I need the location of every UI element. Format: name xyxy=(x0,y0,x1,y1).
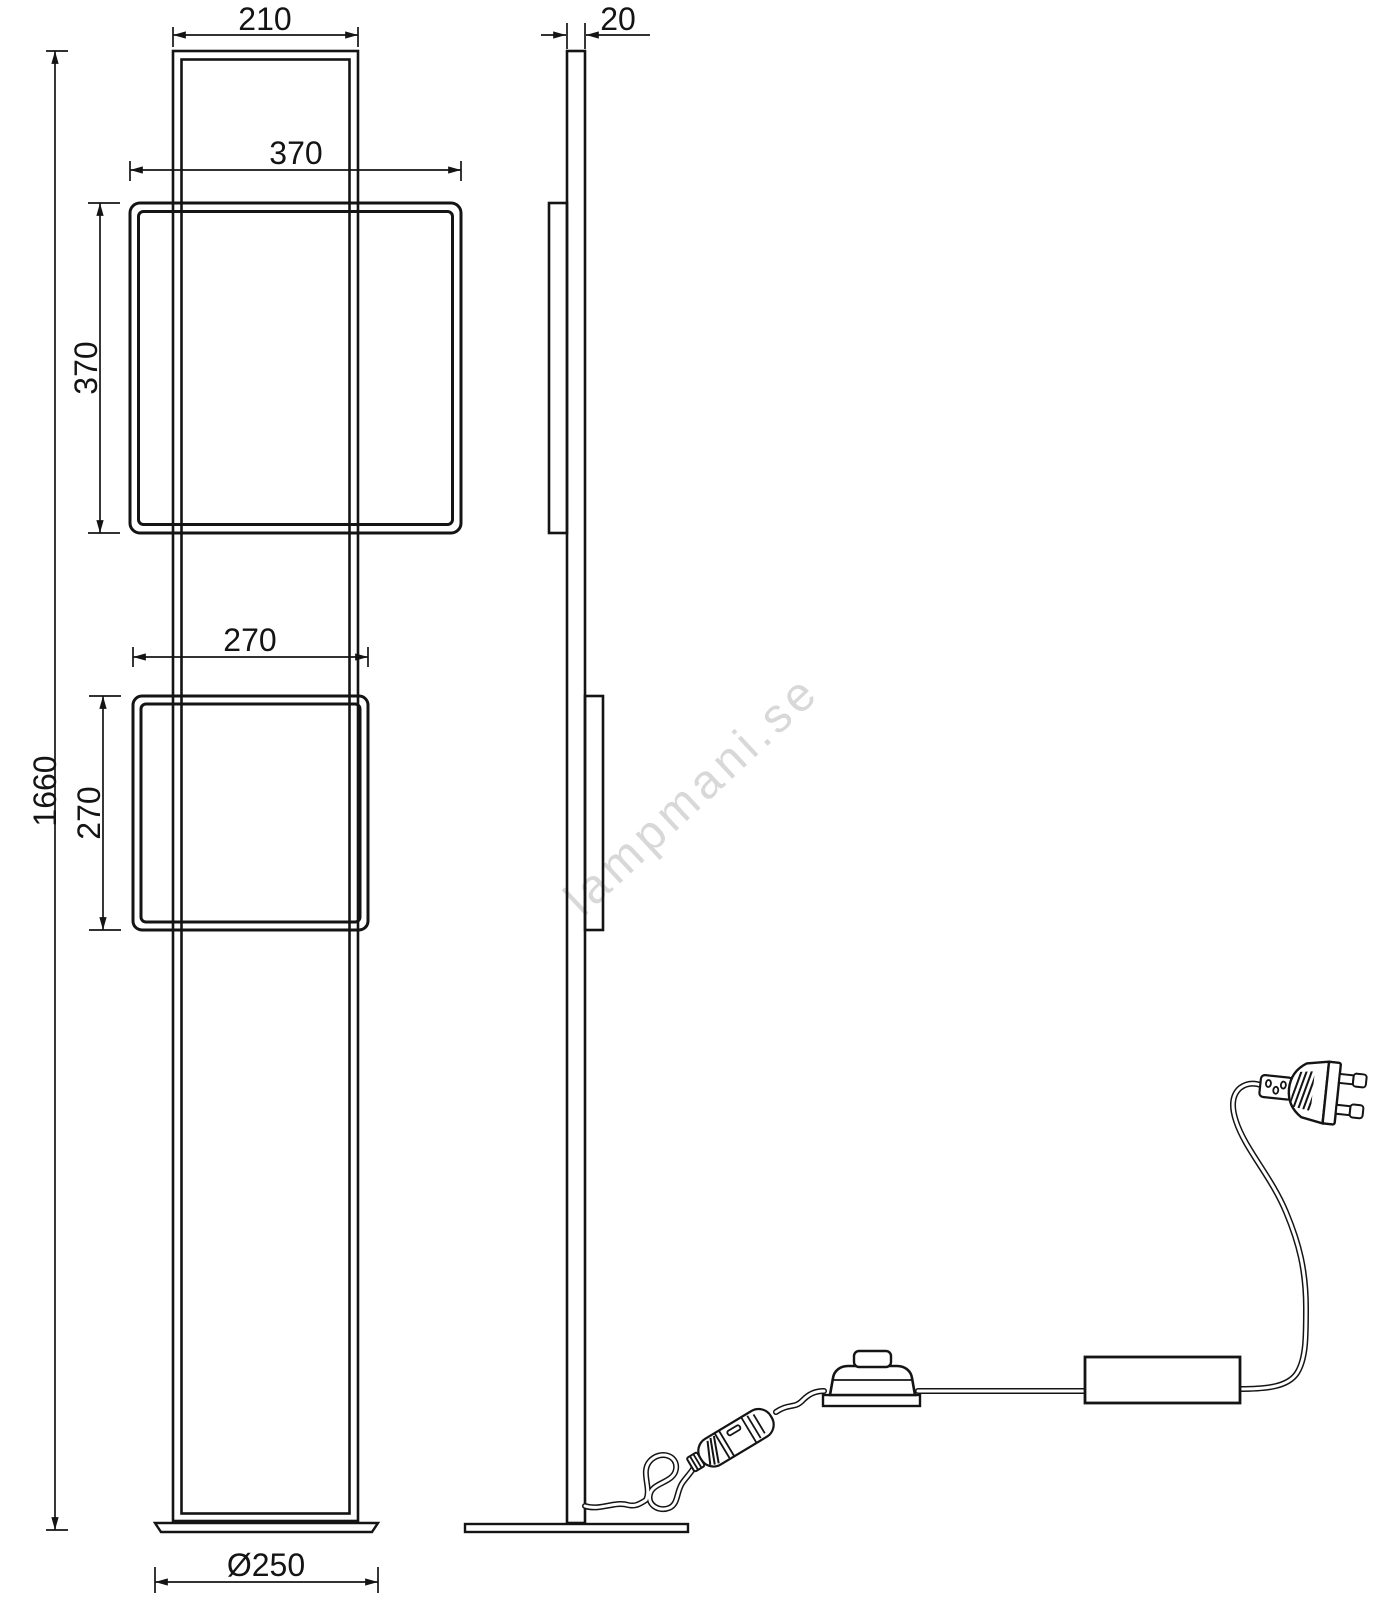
dimension-lower-frame-width: 270 xyxy=(133,622,368,667)
power-plug xyxy=(1257,1055,1368,1128)
dim-label-total-height: 1660 xyxy=(27,755,63,826)
cable-with-knot xyxy=(585,1455,696,1509)
dimension-total-height: 1660 xyxy=(27,51,68,1530)
dim-label-upper-frame-width: 370 xyxy=(269,135,322,171)
upper-light-frame xyxy=(130,203,461,533)
dimension-depth: 20 xyxy=(541,1,650,49)
cable-connector-to-footswitch xyxy=(776,1391,824,1412)
technical-drawing: 210 370 370 270 xyxy=(0,0,1391,1600)
base-plate-front xyxy=(155,1523,378,1532)
dimension-base-diameter: Ø250 xyxy=(155,1547,378,1593)
foot-switch xyxy=(823,1351,920,1406)
power-cord-assembly xyxy=(585,1055,1368,1509)
dimension-top-width: 210 xyxy=(173,1,358,47)
cable-driver-to-plug xyxy=(1233,1084,1306,1389)
dim-label-lower-frame-width: 270 xyxy=(223,622,276,658)
lower-light-frame xyxy=(133,696,368,930)
inline-connector xyxy=(683,1404,779,1478)
base-plate-side xyxy=(465,1524,688,1532)
dimension-upper-frame-height: 370 xyxy=(68,203,120,533)
side-view: 20 xyxy=(465,1,1368,1532)
dim-label-depth: 20 xyxy=(600,1,636,37)
upper-frame-side-profile xyxy=(549,203,567,533)
side-pole xyxy=(567,51,585,1523)
dim-label-lower-frame-height: 270 xyxy=(71,786,107,839)
front-view: 210 370 370 270 xyxy=(27,1,461,1593)
dim-label-base-diameter: Ø250 xyxy=(227,1547,305,1583)
dimension-upper-frame-width: 370 xyxy=(130,135,461,181)
dim-label-top-width: 210 xyxy=(238,1,291,37)
pole-frame xyxy=(173,51,358,1521)
drawing-canvas: lampmani.se xyxy=(0,0,1391,1600)
dim-label-upper-frame-height: 370 xyxy=(68,341,104,394)
led-driver-box xyxy=(1085,1357,1240,1403)
lower-frame-side-profile xyxy=(585,696,603,930)
dimension-lower-frame-height: 270 xyxy=(71,696,121,930)
